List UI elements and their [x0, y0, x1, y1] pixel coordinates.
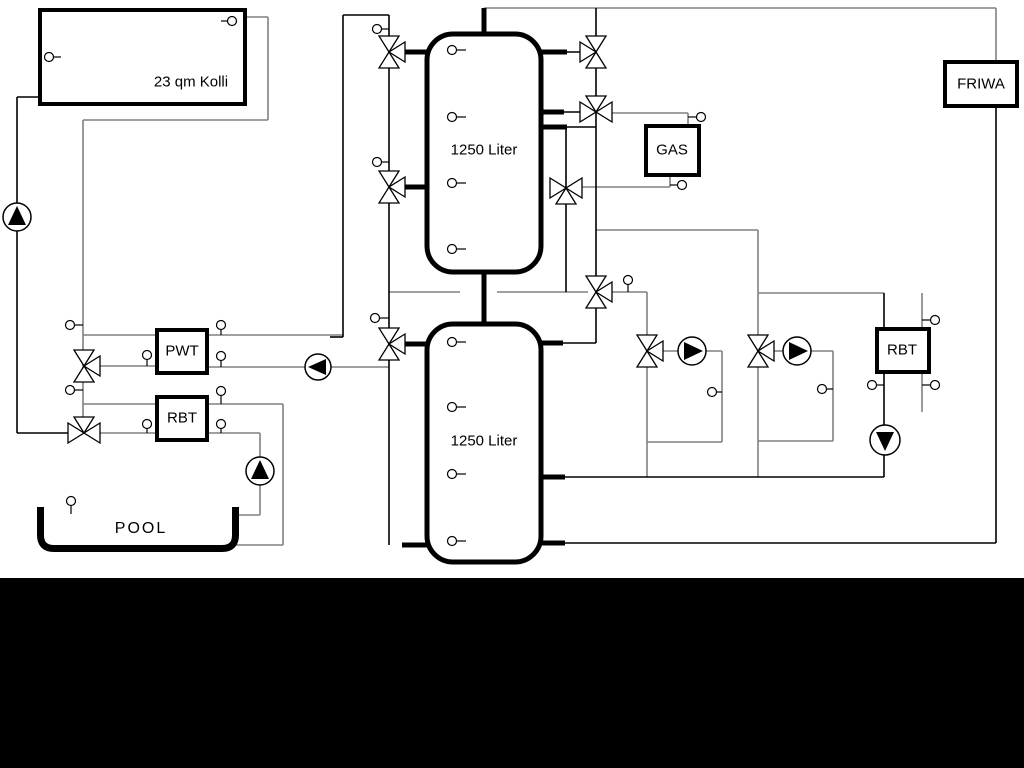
pwt-label: PWT	[165, 343, 198, 360]
valve-distribution-icon	[586, 276, 612, 308]
tank1-label: 1250 Liter	[451, 142, 518, 159]
sensor-rbtr-flow-icon	[922, 316, 940, 325]
sensor-rbtr-bottom-icon	[868, 381, 885, 390]
pump-circuit2-icon	[783, 337, 811, 365]
valve-pool-mix-icon	[68, 417, 100, 443]
sensor-line-rbt-icon	[66, 386, 84, 395]
sensor-rbtl-in-left-icon	[143, 420, 152, 434]
friwa-label: FRIWA	[957, 76, 1005, 93]
valve-tank1-left-top-icon	[379, 36, 405, 68]
sensor-pwt-in-left-icon	[143, 351, 152, 367]
sensor-rbtl-out-bottom-icon	[217, 420, 226, 434]
pump-rbt-icon	[870, 425, 900, 455]
sensor-gas-top-icon	[688, 113, 706, 122]
tank2-label: 1250 Liter	[451, 433, 518, 450]
pump-pool-icon	[246, 457, 274, 485]
sensor-line-pwt-icon	[66, 321, 84, 330]
sensor-rbtr-return-icon	[922, 381, 940, 390]
valve-tank1-right-top-icon	[580, 36, 606, 68]
valve-tank2-left-top-icon	[379, 328, 405, 360]
pump-circuit1-icon	[678, 337, 706, 365]
sensor-valve1-icon	[373, 25, 390, 34]
sensor-valve3-icon	[371, 314, 390, 323]
rbt-right-label: RBT	[887, 342, 917, 359]
collector-label: 23 qm Kolli	[154, 74, 228, 91]
pool-label: POOL	[115, 520, 167, 538]
gas-label: GAS	[656, 142, 688, 159]
sensor-circuit2-icon	[818, 385, 834, 394]
sensor-rbtl-out-top-icon	[217, 387, 226, 405]
sensor-gas-bottom-icon	[670, 181, 687, 190]
sensor-pwt-out-top-icon	[217, 321, 226, 336]
sensor-pool-icon	[67, 497, 76, 515]
valve-tank1-left-mid-icon	[379, 171, 405, 203]
sensor-pwt-out-bottom-icon	[217, 352, 226, 368]
pump-solar-icon	[3, 203, 31, 231]
hydraulic-schematic: 23 qm Kolli 1250 Liter 1250 Liter PWT RB…	[0, 0, 1024, 768]
sensor-circuit1-icon	[708, 388, 723, 397]
sensor-distribution-icon	[624, 276, 633, 293]
valve-circuit2-mix-icon	[748, 335, 774, 367]
valve-circuit1-mix-icon	[637, 335, 663, 367]
rbt-left-label: RBT	[167, 410, 197, 427]
pump-pwt-icon	[305, 354, 331, 380]
valve-pwt-mix-icon	[74, 350, 100, 382]
footer-band	[0, 578, 1024, 768]
sensor-valve2-icon	[373, 158, 390, 167]
